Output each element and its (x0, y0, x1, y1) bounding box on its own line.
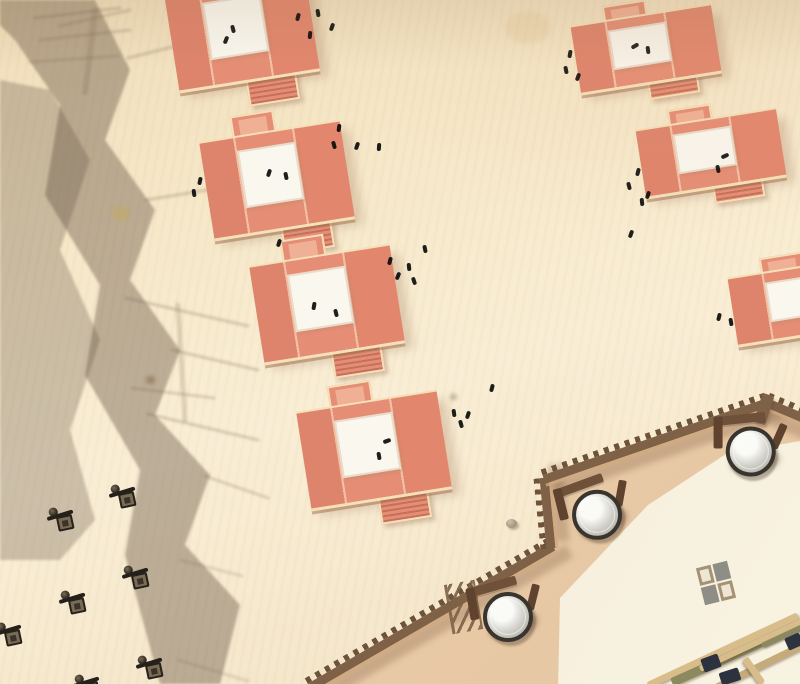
scene (0, 0, 800, 684)
vignette (0, 0, 800, 684)
